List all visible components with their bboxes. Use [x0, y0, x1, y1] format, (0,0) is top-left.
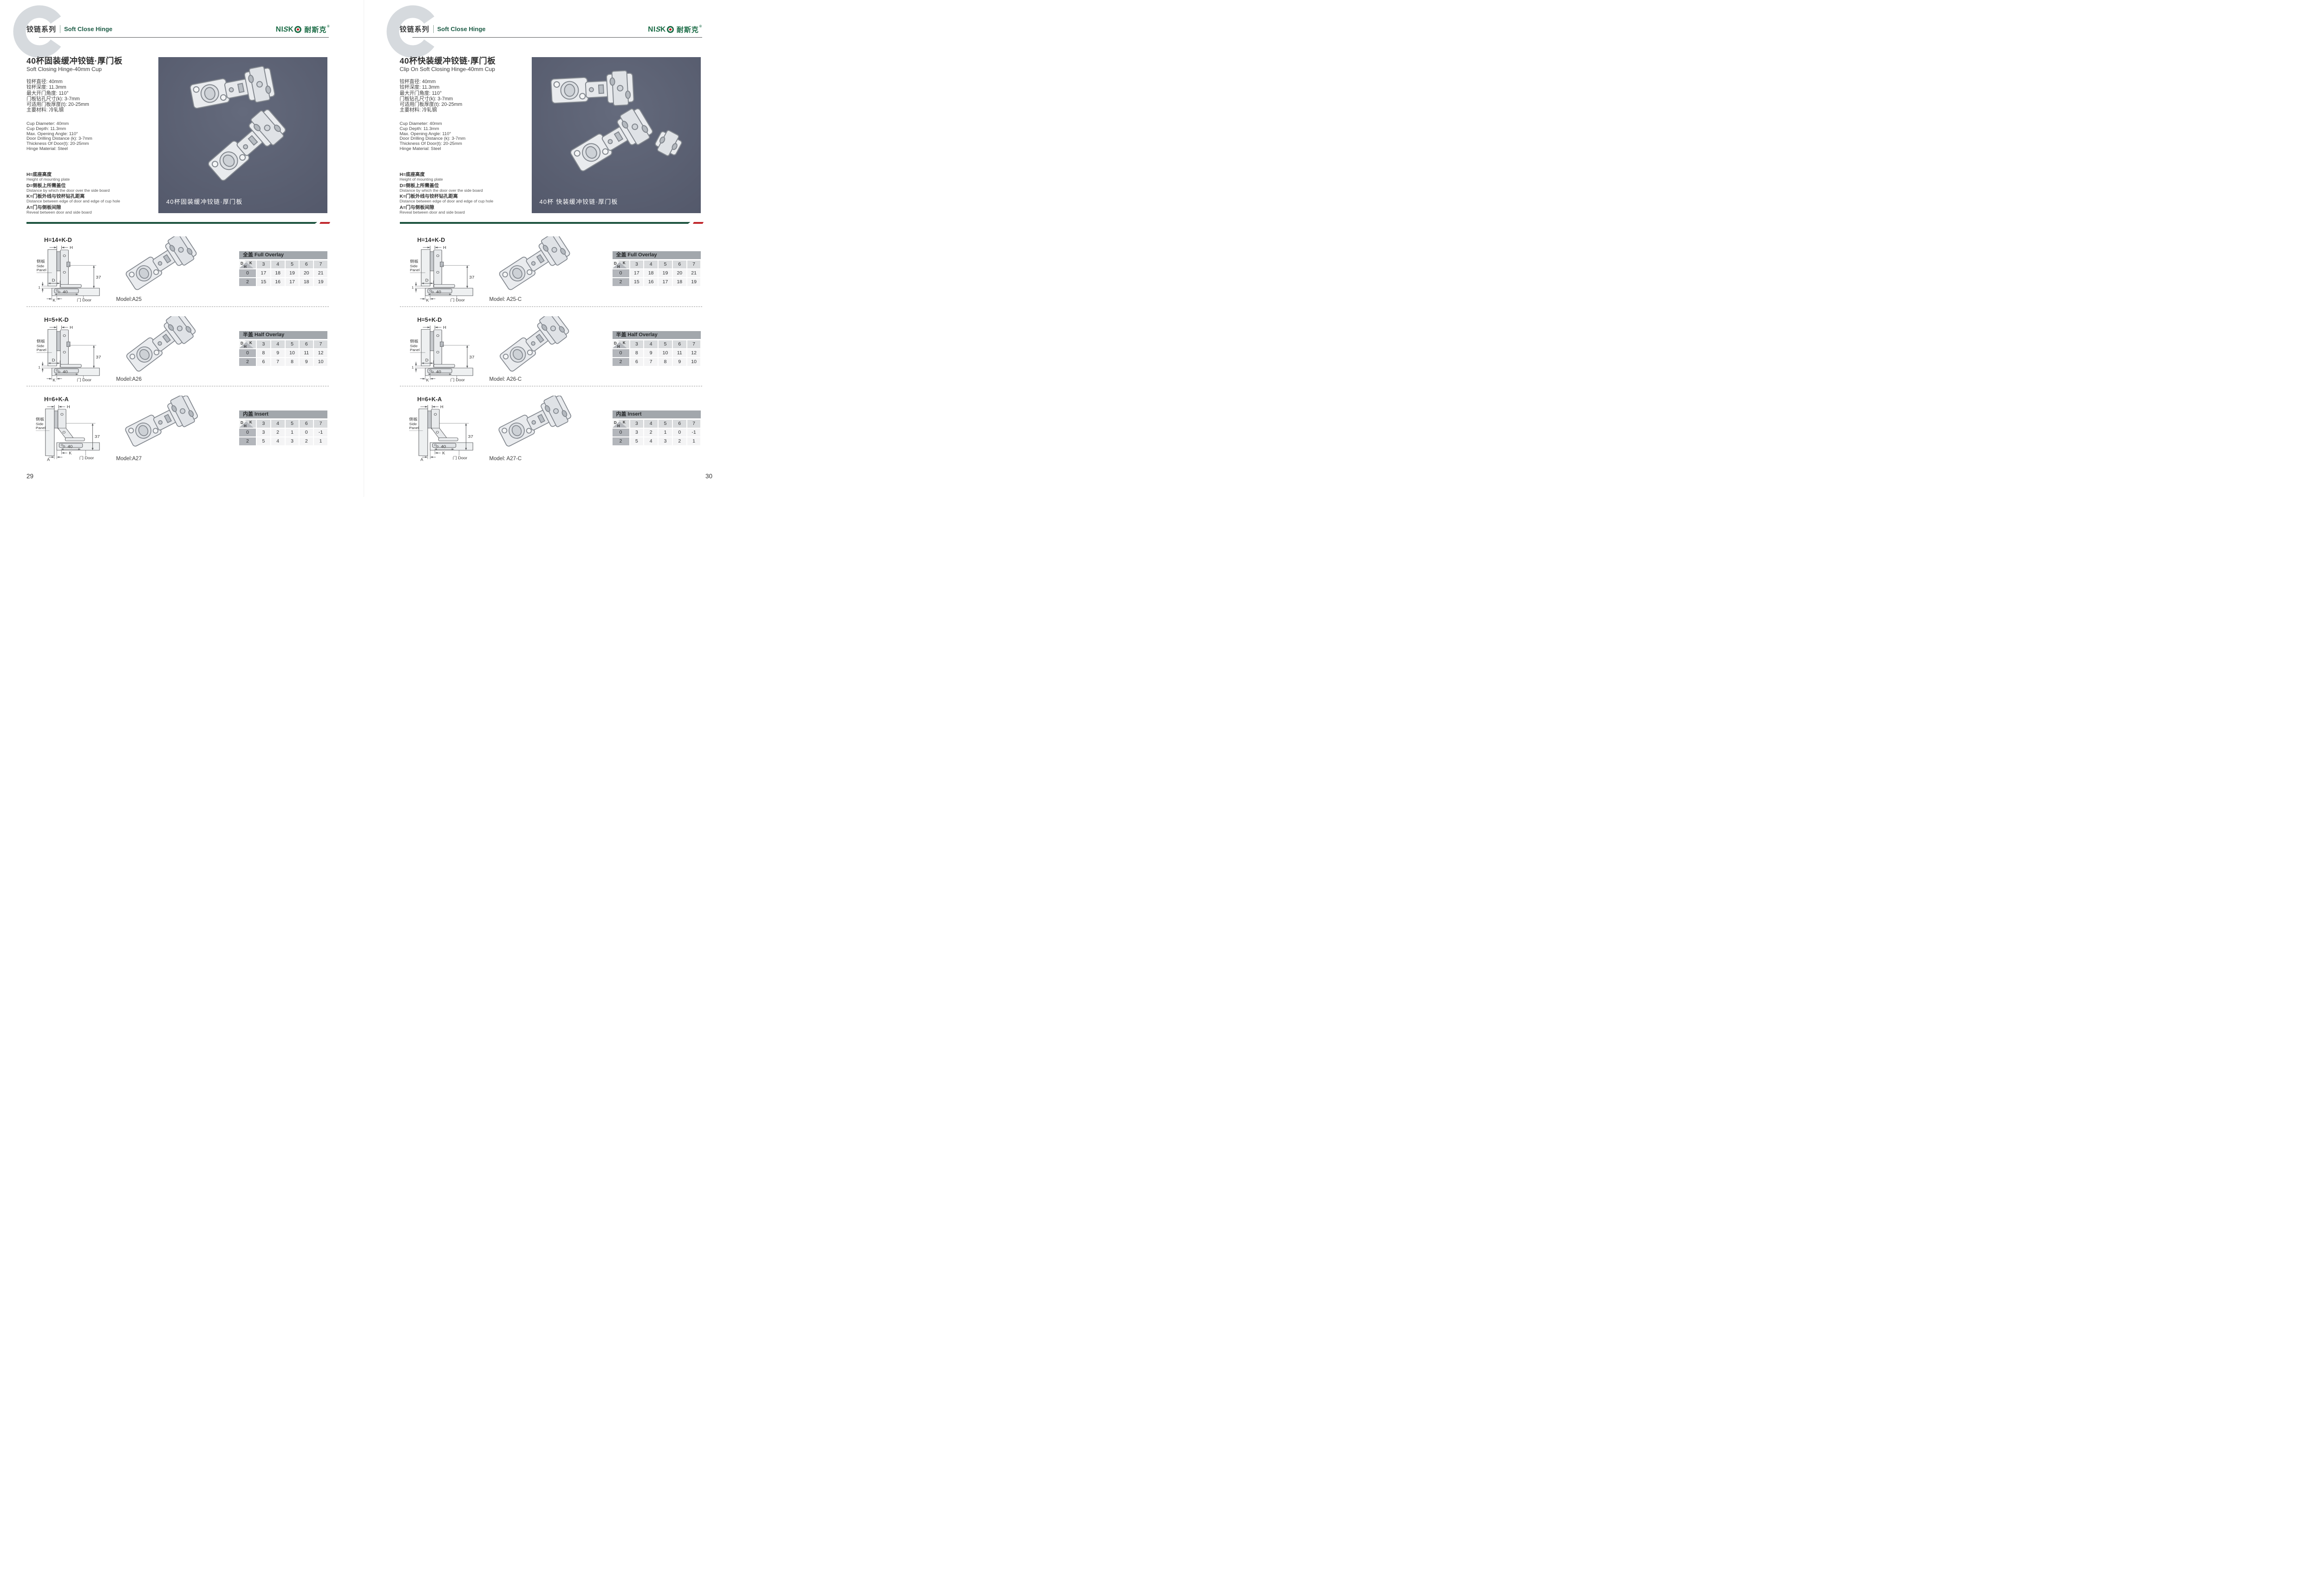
h-row-label: 2 — [613, 437, 629, 445]
legend-en: Reveal between door and side board — [26, 210, 154, 215]
logo-registered-mark: ® — [327, 25, 329, 29]
table-cell: 19 — [286, 269, 299, 277]
dimension-formula: H=14+K-D — [44, 237, 72, 243]
table-cell: 18 — [300, 278, 313, 286]
spec-line: 主要材料: 冷轧钢 — [26, 107, 89, 113]
dimension-table: 内盖 Insert 3 4 5 6 7 0 3 2 1 0 -1 — [239, 410, 327, 445]
h-row-label: 0 — [239, 269, 256, 277]
table-corner — [239, 340, 256, 348]
specs-en: Cup Diameter: 40mm Cup Depth: 11.3mm Max… — [400, 122, 466, 152]
header-rule — [412, 37, 702, 38]
k-column-header: 3 — [257, 340, 270, 348]
h-row-label: 2 — [239, 437, 256, 445]
product-row: H=14+K-D 全盖 Full Overlay 3 4 5 6 7 0 17 … — [26, 235, 330, 311]
table-cell: 16 — [271, 278, 285, 286]
h-row-label: 0 — [613, 349, 629, 357]
table-cell: 2 — [644, 429, 658, 436]
table-cell: 11 — [300, 349, 313, 357]
table-cell: 3 — [630, 429, 644, 436]
hinge-illustration — [489, 396, 582, 456]
technical-drawing — [36, 325, 106, 382]
table-cell: 5 — [630, 437, 644, 445]
series-divider — [433, 25, 434, 33]
k-column-header: 7 — [314, 420, 327, 428]
k-column-header: 5 — [659, 420, 672, 428]
photo-caption: 40杯固装缓冲铰链·厚门板 — [166, 197, 242, 206]
spec-line: Hinge Material: Steel — [26, 147, 92, 152]
h-row-label: 0 — [239, 349, 256, 357]
legend-en: Distance by which the door over the side… — [26, 189, 154, 193]
specs-cn: 铰杯直径: 40mm 铰杯深度: 11.3mm 最大开门角度: 110° 门板钻… — [26, 79, 89, 113]
legend-en: Height of mounting plate — [400, 177, 528, 182]
table-cell: 7 — [271, 358, 285, 366]
table-cell: 19 — [659, 269, 672, 277]
table-title: 内盖 Insert — [239, 410, 327, 418]
k-column-header: 7 — [314, 261, 327, 268]
table-cell: 1 — [659, 429, 672, 436]
spec-line: 铰杯直径: 40mm — [400, 79, 463, 85]
table-cell: 8 — [659, 358, 672, 366]
table-cell: 5 — [257, 437, 270, 445]
product-title-cn: 40杯快装缓冲铰链·厚门板 — [400, 55, 496, 66]
dimension-formula: H=14+K-D — [417, 237, 445, 243]
dimension-table: 全盖 Full Overlay 3 4 5 6 7 0 17 18 19 20 … — [239, 251, 327, 286]
legend: H=底座高度 Height of mounting plate D=侧板上所需盖… — [400, 172, 528, 216]
spec-line: 最大开门角度: 110° — [26, 91, 89, 96]
specs-cn: 铰杯直径: 40mm 铰杯深度: 11.3mm 最大开门角度: 110° 门板钻… — [400, 79, 463, 113]
nisko-logo: NISK耐斯克® — [276, 25, 330, 34]
table-cell: 21 — [314, 269, 327, 277]
table-cell: 17 — [630, 269, 644, 277]
nisko-logo: NISK耐斯克® — [648, 25, 702, 34]
table-cell: 9 — [644, 349, 658, 357]
table-cell: 2 — [271, 429, 285, 436]
k-column-header: 4 — [271, 340, 285, 348]
table-cell: 12 — [687, 349, 701, 357]
logo-cn: 耐斯克 — [677, 25, 699, 34]
series-title-en: Soft Close Hinge — [64, 26, 112, 33]
k-column-header: 7 — [314, 340, 327, 348]
h-row-label: 0 — [239, 429, 256, 436]
legend-cn: D=侧板上所需盖位 — [26, 183, 154, 189]
table-title: 全盖 Full Overlay — [239, 251, 327, 259]
product-title-cn: 40杯固装缓冲铰链·厚门板 — [26, 55, 123, 66]
table-cell: 17 — [286, 278, 299, 286]
legend-en: Reveal between door and side board — [400, 210, 528, 215]
product-row: H=6+K-A 内盖 Insert 3 4 5 6 7 0 3 2 — [400, 394, 703, 470]
table-cell: 19 — [314, 278, 327, 286]
table-cell: 8 — [286, 358, 299, 366]
product-row: H=5+K-D 半盖 Half Overlay 3 4 5 6 7 0 8 9 — [400, 314, 703, 391]
logo-o-icon — [667, 26, 674, 33]
table-cell: 19 — [687, 278, 701, 286]
dimension-formula: H=5+K-D — [417, 317, 442, 323]
table-cell: 18 — [271, 269, 285, 277]
k-column-header: 3 — [257, 261, 270, 268]
logo-o-icon — [294, 26, 301, 33]
table-cell: 17 — [659, 278, 672, 286]
table-cell: 7 — [644, 358, 658, 366]
page-number: 29 — [26, 473, 33, 480]
series-title-cn: 铰链系列 — [26, 24, 56, 34]
logo-registered-mark: ® — [699, 25, 702, 29]
spec-line: 铰杯直径: 40mm — [26, 79, 89, 85]
table-cell: 15 — [630, 278, 644, 286]
technical-drawing — [36, 245, 106, 302]
table-cell: 4 — [644, 437, 658, 445]
k-column-header: 6 — [673, 261, 686, 268]
k-column-header: 7 — [687, 420, 701, 428]
spec-line: 门板钻孔尺寸(k): 3-7mm — [26, 96, 89, 102]
k-column-header: 5 — [286, 420, 299, 428]
logo-dot — [297, 28, 299, 31]
hinge-illustration — [489, 236, 582, 297]
spec-line: 门板钻孔尺寸(k): 3-7mm — [400, 96, 463, 102]
page-right: 铰链系列 Soft Close Hinge NISK耐斯克® 40杯快装缓冲铰链… — [364, 0, 728, 497]
table-cell: 16 — [644, 278, 658, 286]
dashed-separator — [400, 386, 702, 386]
table-corner — [239, 261, 256, 268]
series-header: 铰链系列 Soft Close Hinge — [400, 24, 486, 34]
h-row-label: 2 — [239, 358, 256, 366]
model-label: Model: A27-C — [489, 456, 522, 462]
legend-cn: A=门与侧板间隙 — [26, 205, 154, 210]
k-column-header: 3 — [630, 340, 644, 348]
table-cell: 8 — [630, 349, 644, 357]
legend-cn: A=门与侧板间隙 — [400, 205, 528, 210]
hinge-illustration — [489, 316, 582, 377]
catalog-spread: 铰链系列 Soft Close Hinge NISK耐斯克® 40杯固装缓冲铰链… — [0, 0, 727, 497]
table-corner — [613, 261, 629, 268]
k-column-header: 7 — [687, 261, 701, 268]
table-cell: 1 — [314, 437, 327, 445]
hinge-illustration — [116, 236, 209, 297]
spec-line: Cup Depth: 11.3mm — [400, 127, 466, 132]
k-column-header: 6 — [300, 420, 313, 428]
table-cell: 10 — [286, 349, 299, 357]
table-corner — [613, 340, 629, 348]
k-column-header: 3 — [257, 420, 270, 428]
spec-line: 最大开门角度: 110° — [400, 91, 463, 96]
table-cell: 15 — [257, 278, 270, 286]
table-cell: -1 — [687, 429, 701, 436]
h-row-label: 2 — [613, 278, 629, 286]
table-cell: 6 — [257, 358, 270, 366]
series-title-en: Soft Close Hinge — [437, 26, 486, 33]
divider-green — [26, 222, 317, 224]
logo-text: NI — [648, 26, 656, 34]
table-cell: 20 — [300, 269, 313, 277]
product-row: H=6+K-A 内盖 Insert 3 4 5 6 7 0 3 2 — [26, 394, 330, 470]
dimension-formula: H=5+K-D — [44, 317, 69, 323]
logo-dot — [669, 28, 672, 31]
product-photo: 40杯 快装缓冲铰链·厚门板 — [532, 57, 701, 213]
h-row-label: 0 — [613, 269, 629, 277]
technical-drawing — [409, 325, 480, 382]
product-photo-image — [532, 57, 701, 213]
k-column-header: 5 — [286, 340, 299, 348]
header-rule — [39, 37, 329, 38]
k-column-header: 6 — [300, 261, 313, 268]
model-label: Model: A26-C — [489, 377, 522, 382]
table-cell: 9 — [300, 358, 313, 366]
k-column-header: 6 — [300, 340, 313, 348]
model-label: Model:A25 — [116, 297, 142, 302]
table-cell: 6 — [630, 358, 644, 366]
technical-drawing — [409, 245, 480, 302]
dimension-table: 内盖 Insert 3 4 5 6 7 0 3 2 1 0 -1 — [613, 410, 701, 445]
page-left: 铰链系列 Soft Close Hinge NISK耐斯克® 40杯固装缓冲铰链… — [0, 0, 364, 497]
k-column-header: 4 — [644, 261, 658, 268]
series-title-cn: 铰链系列 — [400, 24, 430, 34]
table-cell: 8 — [257, 349, 270, 357]
table-cell: -1 — [314, 429, 327, 436]
table-cell: 9 — [271, 349, 285, 357]
hinge-illustration — [116, 396, 209, 456]
product-photo: 40杯固装缓冲铰链·厚门板 — [158, 57, 327, 213]
model-label: Model:A26 — [116, 377, 142, 382]
table-title: 半盖 Half Overlay — [239, 331, 327, 339]
table-cell: 0 — [673, 429, 686, 436]
spec-line: 铰杯深度: 11.3mm — [400, 85, 463, 90]
series-divider — [60, 25, 60, 33]
logo-text: K — [288, 26, 294, 34]
k-column-header: 5 — [659, 261, 672, 268]
table-cell: 9 — [673, 358, 686, 366]
product-photo-image — [158, 57, 327, 213]
product-title-en: Soft Closing Hinge-40mm Cup — [26, 66, 102, 72]
spec-line: 可适用门板厚度(t): 20-25mm — [26, 102, 89, 107]
specs-en: Cup Diameter: 40mm Cup Depth: 11.3mm Max… — [26, 122, 92, 152]
dashed-separator — [400, 306, 702, 307]
dimension-table: 半盖 Half Overlay 3 4 5 6 7 0 8 9 10 11 12 — [239, 331, 327, 366]
h-row-label: 2 — [239, 278, 256, 286]
k-column-header: 4 — [644, 340, 658, 348]
k-column-header: 4 — [644, 420, 658, 428]
table-cell: 18 — [673, 278, 686, 286]
table-cell: 3 — [257, 429, 270, 436]
model-label: Model:A27 — [116, 456, 142, 462]
photo-caption: 40杯 快装缓冲铰链·厚门板 — [540, 197, 618, 206]
table-cell: 3 — [286, 437, 299, 445]
product-title-en: Clip On Soft Closing Hinge-40mm Cup — [400, 66, 495, 72]
model-label: Model: A25-C — [489, 297, 522, 302]
k-column-header: 6 — [673, 420, 686, 428]
series-header: 铰链系列 Soft Close Hinge — [26, 24, 112, 34]
dashed-separator — [26, 306, 329, 307]
table-cell: 20 — [673, 269, 686, 277]
table-cell: 10 — [314, 358, 327, 366]
table-cell: 17 — [257, 269, 270, 277]
k-column-header: 4 — [271, 261, 285, 268]
k-column-header: 3 — [630, 420, 644, 428]
h-row-label: 0 — [613, 429, 629, 436]
table-cell: 10 — [659, 349, 672, 357]
table-cell: 2 — [300, 437, 313, 445]
divider-red — [320, 222, 330, 224]
table-corner — [239, 420, 256, 428]
section-divider — [26, 222, 330, 224]
technical-drawing — [409, 404, 480, 462]
legend-en: Distance between edge of door and edge o… — [400, 199, 528, 204]
dimension-formula: H=6+K-A — [417, 396, 442, 403]
spec-line: 可适用门板厚度(t): 20-25mm — [400, 102, 463, 107]
table-cell: 2 — [673, 437, 686, 445]
table-cell: 4 — [271, 437, 285, 445]
hinge-illustration — [116, 316, 209, 377]
table-cell: 1 — [286, 429, 299, 436]
table-title: 半盖 Half Overlay — [613, 331, 701, 339]
h-row-label: 2 — [613, 358, 629, 366]
table-cell: 18 — [644, 269, 658, 277]
k-column-header: 3 — [630, 261, 644, 268]
k-column-header: 7 — [687, 340, 701, 348]
legend-en: Distance between edge of door and edge o… — [26, 199, 154, 204]
table-cell: 0 — [300, 429, 313, 436]
k-column-header: 5 — [659, 340, 672, 348]
logo-cn: 耐斯克 — [304, 25, 326, 34]
legend-en: Height of mounting plate — [26, 177, 154, 182]
spec-line: 主要材料: 冷轧钢 — [400, 107, 463, 113]
table-cell: 21 — [687, 269, 701, 277]
divider-green — [400, 222, 691, 224]
spec-line: Hinge Material: Steel — [400, 147, 466, 152]
divider-red — [692, 222, 703, 224]
dashed-separator — [26, 386, 329, 386]
page-number: 30 — [705, 473, 712, 480]
section-divider — [400, 222, 703, 224]
dimension-table: 全盖 Full Overlay 3 4 5 6 7 0 17 18 19 20 … — [613, 251, 701, 286]
table-title: 内盖 Insert — [613, 410, 701, 418]
product-row: H=5+K-D 半盖 Half Overlay 3 4 5 6 7 0 8 9 — [26, 314, 330, 391]
product-row: H=14+K-D 全盖 Full Overlay 3 4 5 6 7 0 17 … — [400, 235, 703, 311]
legend-en: Distance by which the door over the side… — [400, 189, 528, 193]
legend-cn: D=侧板上所需盖位 — [400, 183, 528, 189]
table-title: 全盖 Full Overlay — [613, 251, 701, 259]
table-cell: 3 — [659, 437, 672, 445]
dimension-table: 半盖 Half Overlay 3 4 5 6 7 0 8 9 10 11 12 — [613, 331, 701, 366]
table-cell: 11 — [673, 349, 686, 357]
table-cell: 10 — [687, 358, 701, 366]
legend: H=底座高度 Height of mounting plate D=侧板上所需盖… — [26, 172, 154, 216]
spec-line: 铰杯深度: 11.3mm — [26, 85, 89, 90]
k-column-header: 5 — [286, 261, 299, 268]
technical-drawing — [36, 404, 106, 462]
dimension-formula: H=6+K-A — [44, 396, 69, 403]
spec-line: Cup Depth: 11.3mm — [26, 127, 92, 132]
k-column-header: 6 — [673, 340, 686, 348]
table-cell: 12 — [314, 349, 327, 357]
table-corner — [613, 420, 629, 428]
table-cell: 1 — [687, 437, 701, 445]
k-column-header: 4 — [271, 420, 285, 428]
